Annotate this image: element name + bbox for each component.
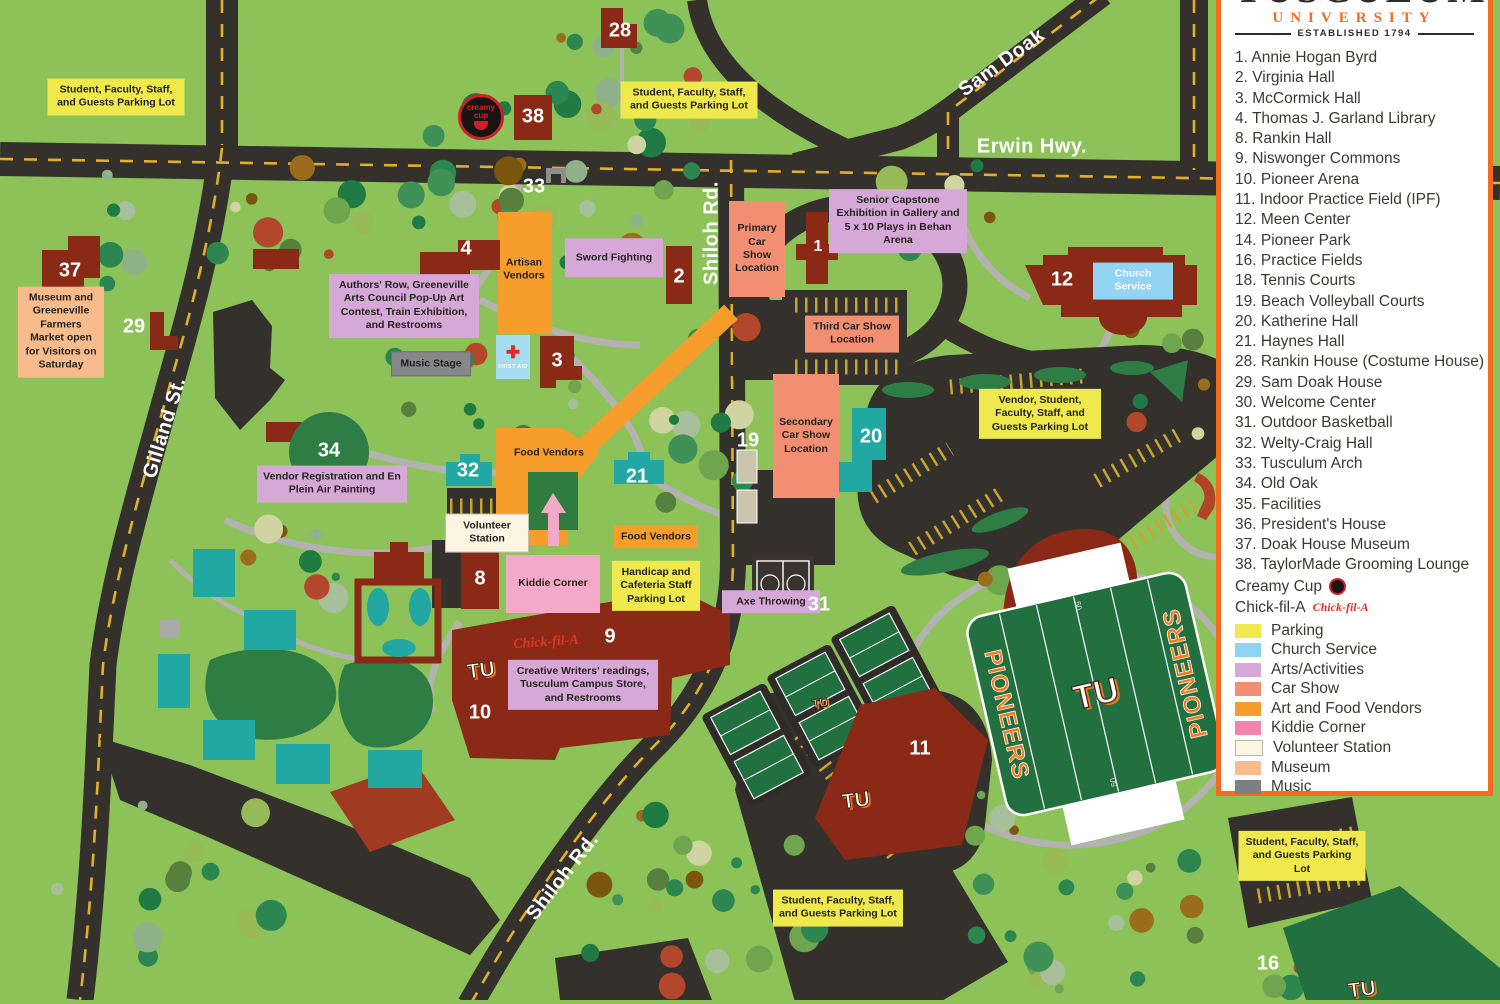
map-number-38: 38 — [522, 106, 544, 129]
university-logo-title: TUSCULUM — [1235, 0, 1474, 9]
university-logo-subtitle: UNIVERSITY — [1235, 9, 1474, 27]
legend-category-parking: Parking — [1235, 621, 1474, 641]
parking-label-vendor-east: Vendor, Student, Faculty, Staff, and Gue… — [979, 389, 1101, 439]
map-number-11: 11 — [909, 738, 930, 761]
legend-item-4: 4. Thomas J. Garland Library — [1235, 109, 1474, 129]
legend-category-museum: Museum — [1235, 758, 1474, 778]
legend-category-swatches: ParkingChurch ServiceArts/ActivitiesCar … — [1235, 621, 1474, 797]
map-number-2: 2 — [673, 266, 684, 289]
parking-label-top-center: Student, Faculty, Staff, and Guests Park… — [621, 82, 758, 119]
swatch-color — [1235, 761, 1261, 775]
map-number-21: 21 — [626, 466, 648, 489]
legend-item-10: 10. Pioneer Arena — [1235, 170, 1474, 190]
third-car-show-label: Third Car Show Location — [805, 316, 899, 353]
legend-item-31: 31. Outdoor Basketball — [1235, 413, 1474, 433]
legend-category-volunteer-station: Volunteer Station — [1235, 738, 1474, 758]
legend-item-29: 29. Sam Doak House — [1235, 373, 1474, 393]
legend-building-list: 1. Annie Hogan Byrd2. Virginia Hall3. Mc… — [1235, 48, 1474, 576]
road-label-shiloh-rd-top: Shiloh Rd. — [701, 181, 724, 285]
legend-creamy-cup: Creamy Cup — [1235, 576, 1474, 597]
legend-item-38: 38. TaylorMade Grooming Lounge — [1235, 555, 1474, 575]
axe-throwing-label: Axe Throwing — [722, 590, 820, 613]
map-number-9: 9 — [604, 626, 615, 649]
legend-panel: TUSCULUM UNIVERSITY ESTABLISHED 1794 1. … — [1216, 0, 1493, 796]
parking-label-bottom-center: Student, Faculty, Staff, and Guests Park… — [773, 890, 903, 927]
legend-item-33: 33. Tusculum Arch — [1235, 454, 1474, 474]
legend-item-14: 14. Pioneer Park — [1235, 231, 1474, 251]
campus-map: PIONEERS PIONEERS 50 50 TU TU — [0, 0, 1500, 1000]
authors-row-label: Authors' Row, Greeneville Arts Council P… — [329, 274, 479, 338]
tu-logo-tennis: TU — [811, 695, 829, 711]
legend-item-16: 16. Practice Fields — [1235, 251, 1474, 271]
creamy-cup-mini-logo — [1329, 578, 1346, 595]
map-number-16: 16 — [1257, 953, 1279, 976]
map-number-29: 29 — [123, 316, 145, 339]
legend-category-church-service: Church Service — [1235, 640, 1474, 660]
legend-item-18: 18. Tennis Courts — [1235, 271, 1474, 291]
first-aid-station: ✚ FIRST AID — [496, 335, 530, 379]
legend-item-19: 19. Beach Volleyball Courts — [1235, 292, 1474, 312]
swatch-color — [1235, 780, 1261, 794]
legend-category-arts-activities: Arts/Activities — [1235, 660, 1474, 680]
road-label-erwin-hwy: Erwin Hwy. — [977, 136, 1087, 159]
map-number-34: 34 — [318, 440, 340, 463]
legend-item-3: 3. McCormick Hall — [1235, 89, 1474, 109]
music-stage-label: Music Stage — [391, 351, 471, 376]
church-service-label: Church Service — [1093, 263, 1173, 300]
map-number-10: 10 — [469, 702, 491, 725]
legend-category-art-and-food-vendors: Art and Food Vendors — [1235, 699, 1474, 719]
legend-item-12: 12. Meen Center — [1235, 210, 1474, 230]
legend-item-32: 32. Welty-Craig Hall — [1235, 434, 1474, 454]
legend-item-21: 21. Haynes Hall — [1235, 332, 1474, 352]
chick-fil-a-mini-logo: Chick-fil-A — [1313, 597, 1369, 618]
map-number-33: 33 — [523, 176, 545, 199]
map-number-1: 1 — [814, 238, 823, 256]
legend-item-9: 9. Niswonger Commons — [1235, 149, 1474, 169]
swatch-color — [1235, 643, 1261, 657]
senior-capstone-label: Senior Capstone Exhibition in Gallery an… — [829, 189, 967, 253]
legend-item-30: 30. Welcome Center — [1235, 393, 1474, 413]
legend-item-36: 36. President's House — [1235, 515, 1474, 535]
tu-logo-arena: TU — [465, 657, 496, 685]
map-number-8: 8 — [474, 568, 485, 591]
parking-label-bottom-right: Student, Faculty, Staff, and Guests Park… — [1239, 831, 1366, 881]
parking-label-top-left: Student, Faculty, Staff, and Guests Park… — [48, 79, 185, 116]
museum-label: Museum and Greeneville Farmers Market op… — [18, 287, 104, 378]
swatch-color — [1235, 624, 1261, 638]
map-number-37: 37 — [59, 260, 81, 283]
map-number-32: 32 — [457, 460, 479, 483]
university-logo-established: ESTABLISHED 1794 — [1235, 27, 1474, 41]
map-number-4: 4 — [460, 238, 471, 261]
swatch-color — [1235, 740, 1263, 756]
map-number-12: 12 — [1051, 269, 1073, 292]
legend-item-35: 35. Facilities — [1235, 495, 1474, 515]
legend-category-car-show: Car Show — [1235, 680, 1474, 700]
first-aid-cross-icon: ✚ — [506, 344, 520, 361]
tu-logo-ipf: TU — [840, 787, 871, 815]
legend-category-music: Music — [1235, 777, 1474, 797]
legend-item-11: 11. Indoor Practice Field (IPF) — [1235, 190, 1474, 210]
artisan-vendors-label: Artisan Vendors — [495, 252, 553, 289]
map-number-20: 20 — [860, 426, 882, 449]
vendor-registration-label: Vendor Registration and En Plein Air Pai… — [257, 466, 407, 503]
legend-item-8: 8. Rankin Hall — [1235, 129, 1474, 149]
map-number-31: 31 — [808, 594, 830, 617]
kiddie-corner-label: Kiddie Corner — [506, 555, 600, 613]
legend-item-34: 34. Old Oak — [1235, 474, 1474, 494]
primary-car-show-label: Primary Car Show Location — [729, 201, 785, 297]
legend-item-2: 2. Virginia Hall — [1235, 68, 1474, 88]
swatch-color — [1235, 663, 1261, 677]
secondary-car-show-label: Secondary Car Show Location — [773, 374, 839, 498]
map-number-19: 19 — [737, 430, 759, 453]
legend-item-37: 37. Doak House Museum — [1235, 535, 1474, 555]
creative-writers-label: Creative Writers' readings, Tusculum Cam… — [508, 660, 658, 710]
sword-fighting-label: Sword Fighting — [565, 238, 663, 277]
legend-item-20: 20. Katherine Hall — [1235, 312, 1474, 332]
legend-chick-fil-a: Chick-fil-A Chick-fil-A — [1235, 597, 1474, 618]
legend-category-kiddie-corner: Kiddie Corner — [1235, 719, 1474, 739]
map-number-3: 3 — [551, 350, 562, 373]
food-vendors-label-east: Food Vendors — [614, 525, 698, 548]
map-number-28: 28 — [609, 20, 631, 43]
coffee-cup-icon — [474, 121, 488, 130]
legend-item-1: 1. Annie Hogan Byrd — [1235, 48, 1474, 68]
creamy-cup-logo: creamy cup — [458, 94, 504, 140]
legend-item-28: 28. Rankin House (Costume House) — [1235, 352, 1474, 372]
swatch-color — [1235, 682, 1261, 696]
swatch-color — [1235, 721, 1261, 735]
food-vendors-label-main: Food Vendors — [503, 441, 595, 464]
parking-label-handicap: Handicap and Cafeteria Staff Parking Lot — [612, 561, 700, 611]
swatch-color — [1235, 702, 1261, 716]
volunteer-station-label: Volunteer Station — [445, 514, 529, 553]
